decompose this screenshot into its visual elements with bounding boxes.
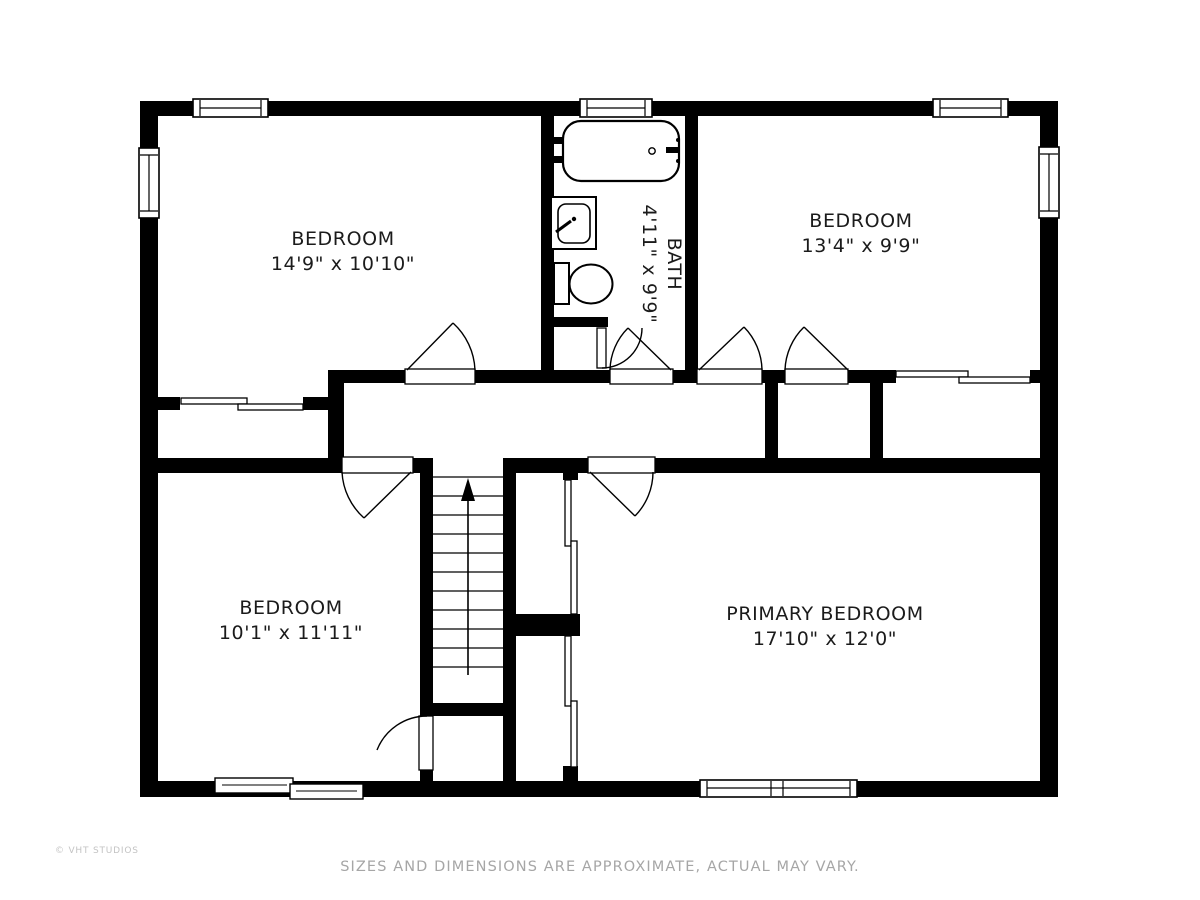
wall-stairs-right <box>503 458 516 783</box>
wall-primary-closet-stub-bottom <box>563 766 578 782</box>
wall-hall-bottom-d <box>655 458 1040 473</box>
bathtub-icon <box>549 121 680 181</box>
room-name: BEDROOM <box>271 227 415 252</box>
window-icon <box>933 99 1008 117</box>
opening-bath <box>610 369 673 384</box>
room-label-bedroom-top-left: BEDROOM 14'9" x 10'10" <box>271 227 415 277</box>
room-dims: 17'10" x 12'0" <box>726 627 923 652</box>
room-dims: 14'9" x 10'10" <box>271 252 415 277</box>
wall-closet1-jamb-left <box>158 397 180 410</box>
opening-bedroom1 <box>405 369 475 384</box>
wall-primary-closet-stub-top <box>563 458 578 480</box>
window-icon <box>1039 147 1059 218</box>
studio-watermark: © VHT STUDIOS <box>55 846 139 856</box>
sliding-door-icons <box>180 369 1030 767</box>
walls <box>140 101 1058 797</box>
room-dims: 13'4" x 9'9" <box>802 234 921 259</box>
wall-closet1-jamb-right <box>303 397 344 410</box>
wall-hall-bottom-a <box>140 458 342 473</box>
stairs-icon <box>433 477 503 675</box>
door-icon <box>597 328 642 368</box>
window-icons <box>139 99 1059 799</box>
opening-understair <box>419 716 433 770</box>
wall-primary-closet-mid <box>516 614 580 636</box>
window-icon <box>580 99 652 117</box>
window-icon <box>139 148 159 218</box>
door-icon <box>590 472 653 516</box>
floorplan-image: BEDROOM 14'9" x 10'10" BEDROOM 13'4" x 9… <box>0 0 1200 900</box>
stairs-direction-arrow <box>461 478 475 675</box>
room-name: PRIMARY BEDROOM <box>726 602 923 627</box>
room-label-bedroom-bottom-left: BEDROOM 10'1" x 11'11" <box>219 596 363 646</box>
room-label-bedroom-top-right: BEDROOM 13'4" x 9'9" <box>802 209 921 259</box>
sliding-door-icon <box>896 369 1030 384</box>
room-name: BEDROOM <box>802 209 921 234</box>
opening-bedroom2 <box>697 369 762 384</box>
opening-closet-a <box>785 369 848 384</box>
room-dims: 4'11" x 9'9" <box>636 205 661 324</box>
sliding-door-icon <box>565 480 577 614</box>
wall-linen-stub <box>547 317 608 327</box>
wall-stub-a <box>883 370 896 383</box>
room-name: BEDROOM <box>219 596 363 621</box>
wall-stairs-left-b <box>420 770 433 782</box>
door-icon <box>785 327 848 370</box>
room-dims: 10'1" x 11'11" <box>219 621 363 646</box>
size-disclaimer: SIZES AND DIMENSIONS ARE APPROXIMATE, AC… <box>340 859 860 875</box>
sliding-door-icon <box>180 396 303 411</box>
window-icon <box>700 780 857 797</box>
sliding-door-icon <box>565 636 577 767</box>
window-icon <box>193 99 268 117</box>
toilet-icon <box>554 263 613 304</box>
door-icon <box>407 323 475 370</box>
floorplan-drawing <box>0 0 1200 900</box>
room-label-bath: BATH 4'11" x 9'9" <box>636 205 686 324</box>
wall-understair-closet <box>433 703 503 716</box>
room-name: BATH <box>661 205 686 324</box>
wall-bath-right <box>685 101 698 383</box>
sink-icon <box>551 197 596 249</box>
door-icon <box>699 327 762 370</box>
opening-primary <box>588 457 655 473</box>
wall-stub-b <box>1030 370 1040 383</box>
wall-hall-end <box>765 383 778 458</box>
opening-bedroom3 <box>342 457 413 473</box>
wall-closet-divider <box>870 370 883 458</box>
room-label-primary-bedroom: PRIMARY BEDROOM 17'10" x 12'0" <box>726 602 923 652</box>
door-icon <box>342 472 411 518</box>
wall-stairs-left-a <box>420 460 433 716</box>
